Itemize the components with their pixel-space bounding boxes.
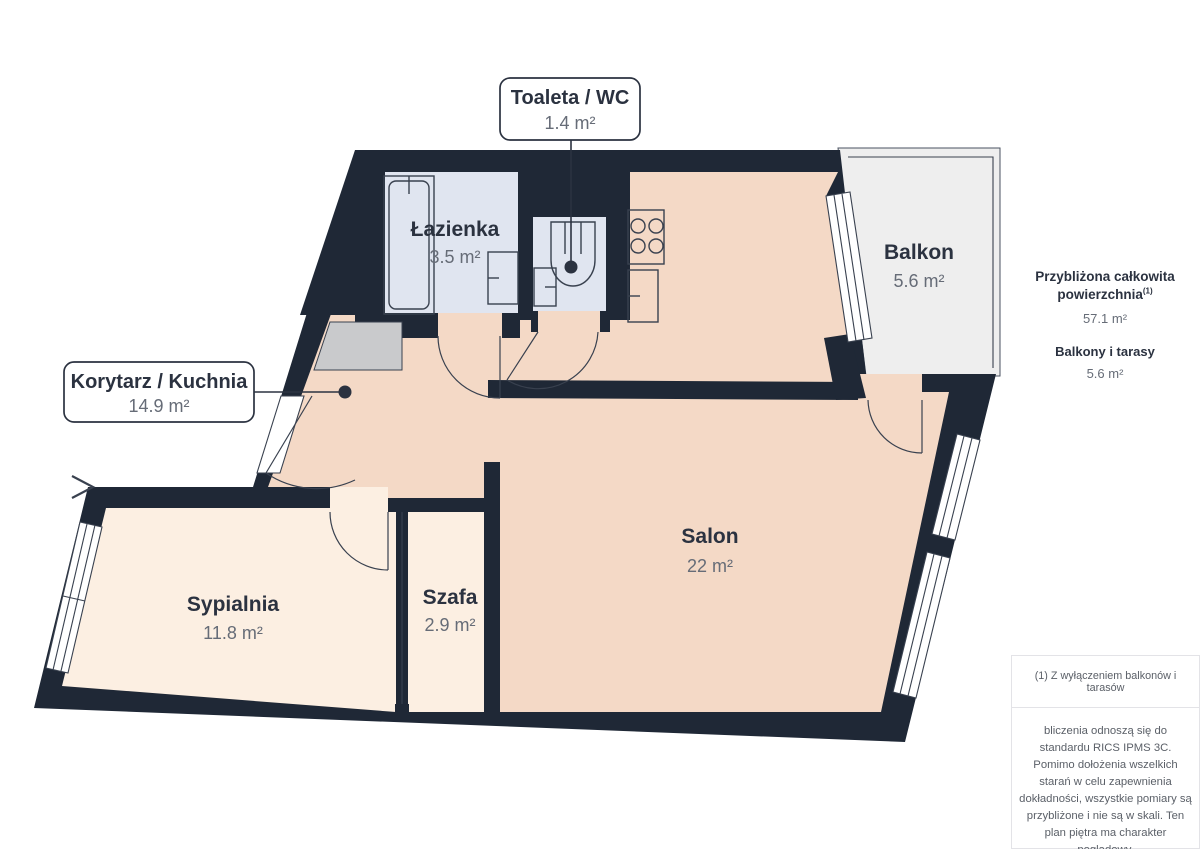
sypialnia-door-gap [330,487,388,512]
footnote-box: (1) Z wyłączeniem balkonów i tarasów [1011,655,1200,708]
room-area-sypialnia: 11.8 m² [203,623,263,643]
footnote-text: (1) Z wyłączeniem balkonów i tarasów [1012,670,1199,694]
room-label-lazienka: Łazienka [411,218,500,241]
room-area-salon: 22 m² [687,556,733,576]
room-label-sypialnia: Sypialnia [187,593,280,616]
room-szafa-shape [408,512,485,712]
room-label-balkon: Balkon [884,241,954,264]
total-area-footnote-marker: (1) [1143,287,1153,296]
room-area-balkon: 5.6 m² [893,271,944,291]
disclaimer-box: bliczenia odnoszą się do standardu RICS … [1011,707,1200,849]
doormat [314,322,402,370]
total-area-label: Przybliżona całkowita powierzchnia(1) [1014,268,1196,304]
room-area-toaleta: 1.4 m² [544,113,595,133]
room-label-szafa: Szafa [423,586,478,609]
floor-plan-page: Łazienka 3.5 m² Balkon 5.6 m² Salon 22 m… [0,0,1200,849]
balconies-label: Balkony i tarasy [1014,344,1196,359]
room-label-toaleta: Toaleta / WC [511,87,630,109]
summary-panel: Przybliżona całkowita powierzchnia(1) 57… [1014,268,1196,381]
room-area-korytarz: 14.9 m² [128,396,189,416]
disclaimer-text: bliczenia odnoszą się do standardu RICS … [1019,723,1193,849]
room-area-lazienka: 3.5 m² [429,247,480,267]
room-label-korytarz: Korytarz / Kuchnia [71,371,249,393]
room-area-szafa: 2.9 m² [424,615,475,635]
room-lazienka-shape [383,172,520,315]
room-label-salon: Salon [681,525,738,548]
total-area-value: 57.1 m² [1014,311,1196,326]
balconies-value: 5.6 m² [1014,366,1196,381]
